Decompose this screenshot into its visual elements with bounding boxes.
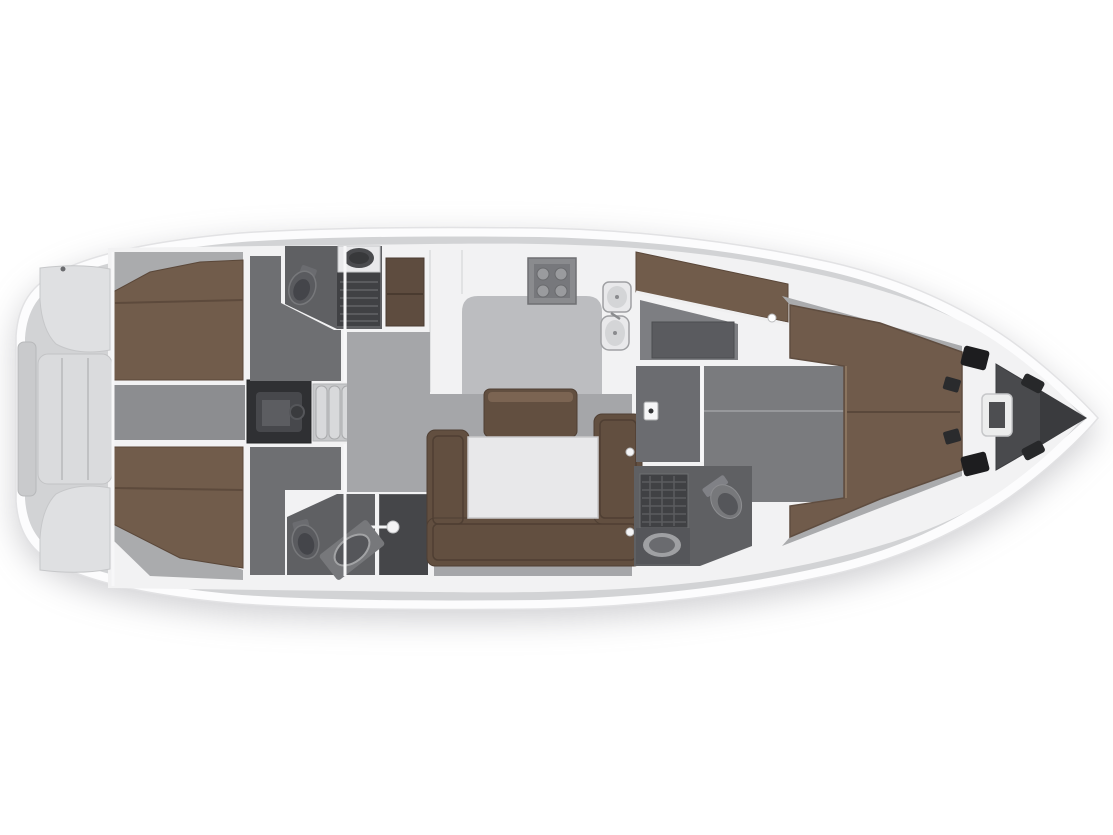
sink-drain (615, 295, 619, 299)
nav-bench-top (488, 392, 573, 402)
windlass-notch (989, 402, 1005, 428)
door-latch (768, 314, 776, 322)
sink-drain (613, 331, 617, 335)
mid-cabin-step-box (652, 322, 734, 358)
shower-handle (387, 521, 399, 533)
swim-platform-step (18, 342, 36, 496)
helm-seat (38, 354, 112, 484)
sink-basin-inner (649, 537, 675, 553)
shower-stall (380, 495, 428, 575)
yacht-floorplan (0, 0, 1113, 835)
galley-locker (386, 258, 424, 326)
door-hinge (626, 528, 634, 536)
engine-pulley (290, 405, 304, 419)
door-hinge (626, 448, 634, 456)
aft-corridor-floor (113, 385, 245, 440)
engine-area (113, 380, 369, 443)
deck-fitting (61, 267, 66, 272)
latch-dot (649, 409, 654, 414)
sink-basin-inner (349, 252, 369, 264)
forward-head (634, 466, 752, 566)
yacht-floorplan-screenshot (0, 0, 1113, 835)
engine-block-top (262, 400, 290, 426)
settee-bottom (427, 518, 642, 566)
salon-table (468, 437, 598, 518)
galley-floor (462, 296, 602, 396)
